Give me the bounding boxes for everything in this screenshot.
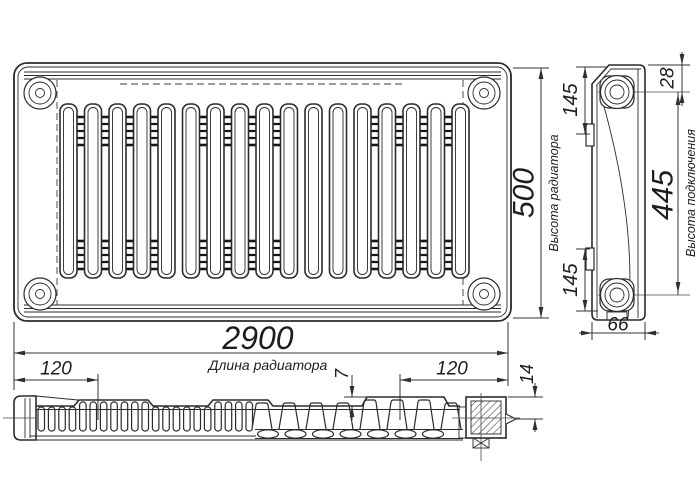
profile-view (3, 393, 520, 461)
caption-height: Высота радиатора (547, 134, 561, 251)
water-channel-links (255, 430, 463, 439)
dim-port-offset-top-label: 145 (560, 82, 582, 116)
dim-length-label: 2900 (221, 320, 293, 356)
dim-height-label: 500 (508, 168, 541, 218)
fin-array (60, 104, 469, 278)
connection-block (452, 393, 520, 461)
radiator-technical-drawing: 2900 Длина радиатора 500 Высота радиатор… (0, 0, 700, 500)
caption-connection: Высота подключения (684, 129, 698, 257)
wall-bracket-tab-bottom (586, 248, 594, 270)
trapezoid-fin-row (252, 400, 461, 429)
connection-tip (506, 414, 516, 424)
caption-length: Длина радиатора (207, 357, 328, 373)
dim-end-depth-label: 14 (517, 364, 537, 384)
dim-bracket-right-label: 120 (436, 359, 468, 380)
dim-depth-label: 66 (607, 315, 629, 336)
front-view (14, 63, 511, 321)
dim-top-to-port-label: 28 (658, 67, 679, 90)
dim-bracket-left-label: 120 (40, 359, 72, 380)
dim-connection-height-label: 445 (647, 170, 680, 220)
dim-port-offset-bottom-label: 145 (560, 262, 582, 296)
top-port (600, 76, 634, 109)
wall-bracket-tab-top (586, 124, 594, 146)
dim-fin-height-label: 7 (332, 368, 352, 379)
